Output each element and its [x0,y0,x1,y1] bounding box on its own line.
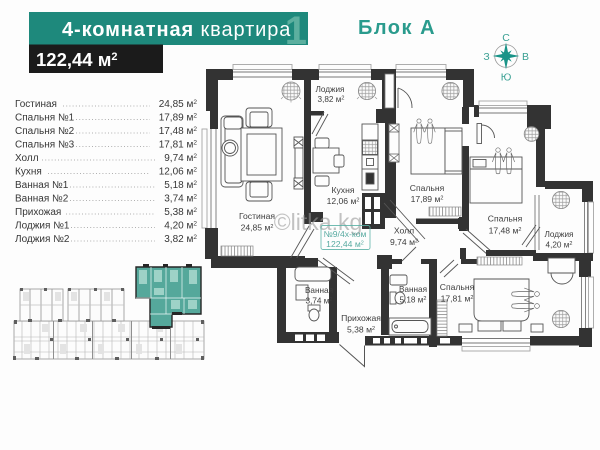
svg-text:17,89 м2: 17,89 м2 [159,113,198,124]
svg-text:17,89 м2: 17,89 м2 [411,194,444,204]
svg-text:Кухня: Кухня [15,167,42,178]
svg-text:С: С [502,32,510,44]
svg-text:3,74 м2: 3,74 м2 [306,297,333,306]
svg-text:Прихожая: Прихожая [341,313,381,323]
svg-text:17,48 м2: 17,48 м2 [159,126,198,137]
svg-text:12,06 м2: 12,06 м2 [327,196,360,206]
svg-text:3,82 м2: 3,82 м2 [318,95,345,104]
svg-text:17,81 м2: 17,81 м2 [159,140,198,151]
svg-text:Спальня №3: Спальня №3 [15,140,75,151]
svg-text:Ванная №1: Ванная №1 [15,180,69,191]
svg-text:5,18 м2: 5,18 м2 [164,180,197,191]
svg-text:17,48 м2: 17,48 м2 [489,226,522,236]
svg-text:4,20 м2: 4,20 м2 [164,221,197,232]
svg-text:Лоджия: Лоджия [544,230,573,239]
svg-text:Спальня №1: Спальня №1 [15,113,75,124]
svg-text:9,74 м2: 9,74 м2 [390,237,418,247]
svg-text:Спальня: Спальня [488,214,523,224]
svg-text:З: З [483,51,489,63]
svg-text:Лоджия: Лоджия [315,85,344,94]
svg-text:Гостиная: Гостиная [239,211,275,221]
svg-text:Лоджия №2: Лоджия №2 [15,234,70,245]
svg-text:24,85 м2: 24,85 м2 [159,99,198,110]
svg-text:5,18 м2: 5,18 м2 [400,296,427,305]
svg-text:В: В [522,51,529,63]
svg-text:3,82 м2: 3,82 м2 [164,234,197,245]
svg-text:Спальня: Спальня [440,282,475,292]
svg-text:17,81 м2: 17,81 м2 [441,294,474,304]
svg-text:№9/4х-ком: №9/4х-ком [324,229,367,239]
svg-text:Холл: Холл [15,153,39,164]
svg-text:9,74 м2: 9,74 м2 [164,153,197,164]
svg-text:122,44 м2: 122,44 м2 [36,49,118,70]
svg-text:4-комнатная квартира: 4-комнатная квартира [62,19,291,41]
svg-text:Холл: Холл [394,226,414,236]
svg-text:5,38 м2: 5,38 м2 [164,207,197,218]
svg-text:Ванная: Ванная [305,286,333,295]
svg-text:4,20 м2: 4,20 м2 [546,241,573,250]
svg-text:Ванная: Ванная [399,285,427,294]
svg-text:Блок А: Блок А [358,17,436,39]
svg-text:3,74 м2: 3,74 м2 [164,194,197,205]
svg-text:Спальня №2: Спальня №2 [15,126,75,137]
svg-text:Спальня: Спальня [410,183,445,193]
svg-text:Гостиная: Гостиная [15,99,57,110]
svg-text:Ванная №2: Ванная №2 [15,194,69,205]
svg-text:12,06 м2: 12,06 м2 [159,167,198,178]
svg-text:5,38 м2: 5,38 м2 [347,325,375,335]
svg-text:Кухня: Кухня [332,185,355,195]
svg-text:Лоджия №1: Лоджия №1 [15,221,70,232]
svg-text:Прихожая: Прихожая [15,207,61,218]
svg-text:122,44 м2: 122,44 м2 [326,239,364,249]
svg-text:Ю: Ю [501,72,512,84]
svg-text:24,85 м2: 24,85 м2 [241,223,274,233]
